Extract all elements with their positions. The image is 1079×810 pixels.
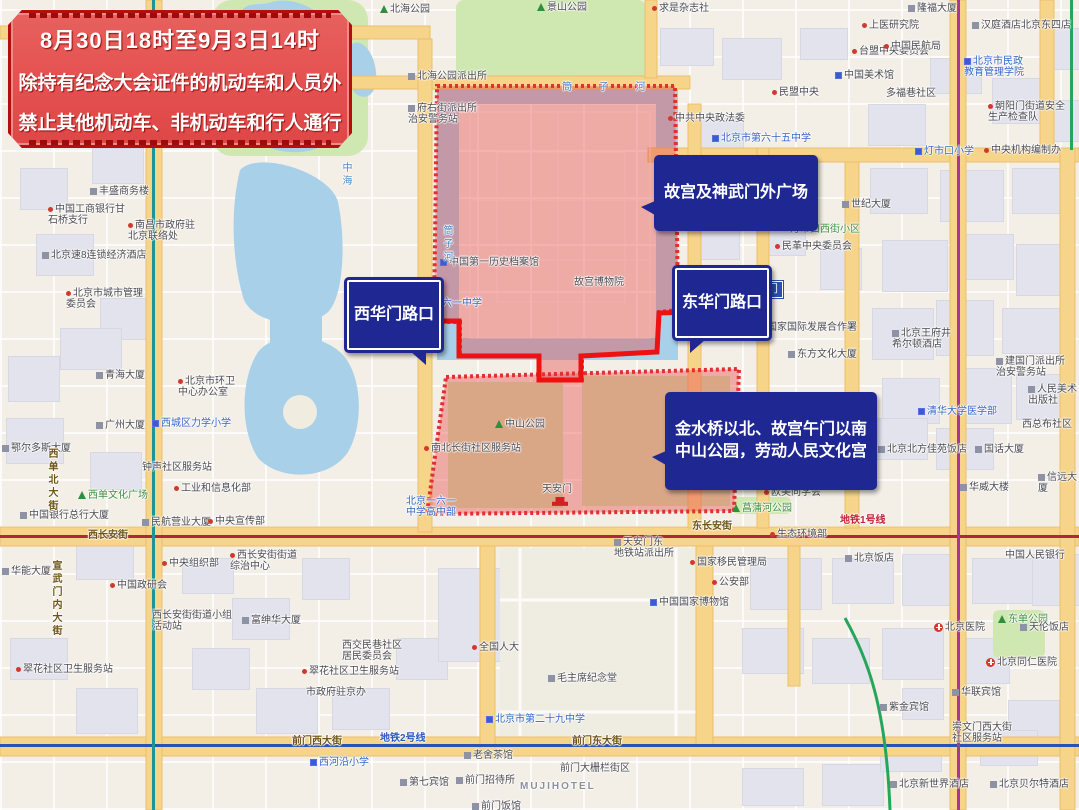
callout-pointer [652,451,666,465]
callout-text: 西华门路口 [354,306,434,323]
banner-line-3: 禁止其他机动车、非机动车和行人通行 [18,108,341,135]
restricted-zone-upper [434,86,678,380]
callout-jinshui-zone: 金水桥以北、故宫午门以南 中山公园，劳动人民文化宫 [665,392,877,490]
traffic-restriction-map[interactable]: 求是杂志社北海公园景山公园上医研究院台盟中央委员会隆福大厦汉庭酒店北京东四店中国… [0,0,1079,810]
banner-line-1: 8月30日18时至9月3日14时 [40,23,320,55]
tiananmen-square [500,548,696,736]
traffic-notice-banner: 8月30日18时至9月3日14时 除持有纪念大会证件的机动车和人员外 禁止其他机… [8,10,352,148]
callout-xihuamen-junction: 西华门路口 [344,277,444,353]
callout-text: 金水桥以北、故宫午门以南 中山公园，劳动人民文化宫 [675,421,867,460]
callout-gugong-square: 故宫及神武门外广场 [654,155,818,231]
callout-donghuamen-junction: 东华门路口 [672,265,772,341]
banner-line-2: 除持有纪念大会证件的机动车和人员外 [18,68,341,95]
callout-text: 东华门路口 [682,294,762,311]
callout-pointer [410,351,426,365]
yingtai-island [283,395,317,429]
callout-text: 故宫及神武门外广场 [664,184,808,201]
callout-pointer [641,201,655,215]
callout-pointer [690,339,706,353]
